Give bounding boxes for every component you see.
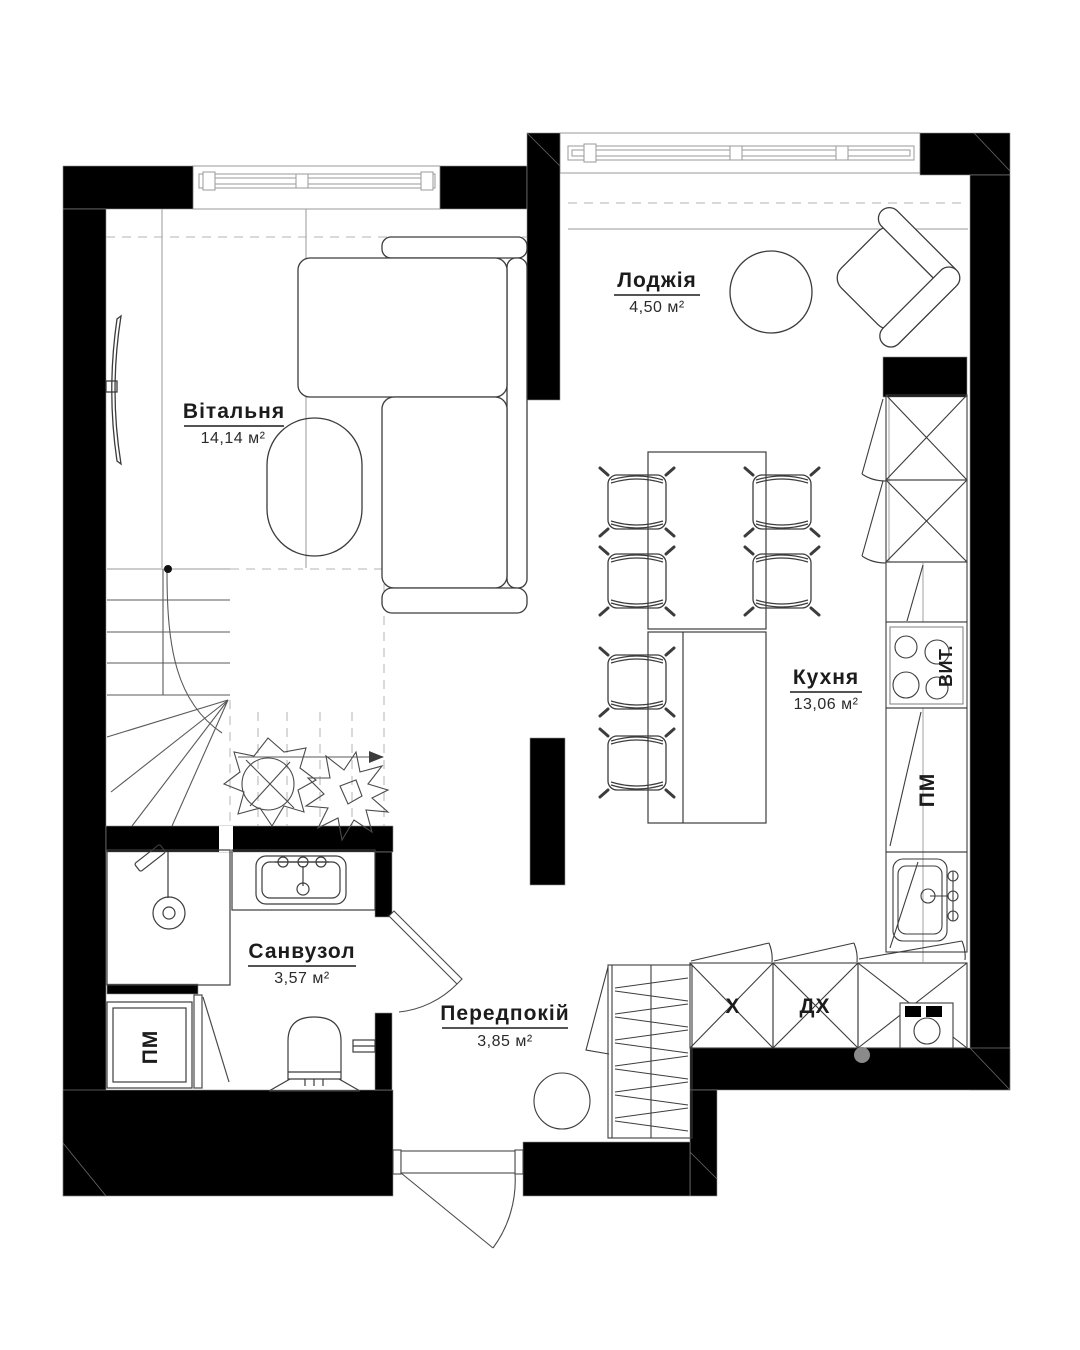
round-table [730,251,812,333]
doors [389,911,523,1248]
room-area-living: 14,14 м² [201,430,266,447]
stair-winder [107,700,228,737]
hallway-furniture [534,965,692,1138]
wall-segment [527,133,560,400]
chair [600,648,674,716]
plants [224,738,388,840]
washbasin [232,850,375,910]
dining-set [600,452,819,823]
room-label-kitchen: Кухня [793,666,859,689]
wall-pillar [530,738,565,885]
cabinet-x-label: Х [725,995,740,1018]
counter-section [886,562,967,622]
room-label-hallway: Передпокій [440,1002,569,1025]
cabinet-dx-label: ДХ [800,995,831,1018]
stair-start-dot [164,565,172,573]
wall-segment [375,852,392,917]
shower-drain [153,897,185,929]
stair-winder [111,700,228,792]
wall-segment [523,1142,690,1196]
wall-segment [883,357,967,397]
wall-segment [375,1013,392,1090]
wall-segment [690,1090,717,1196]
chair [600,729,674,797]
living-room-window [193,166,440,209]
washing-machine-label: ПМ [139,1030,162,1065]
dishwasher-label: ПМ [916,773,939,808]
room-area-hallway: 3,85 м² [477,1033,533,1050]
corner-cabinet [858,941,967,1048]
shower-glass-gap [219,826,233,852]
armchair [816,203,964,351]
sofa [298,237,527,613]
room-label-living: Вітальня [183,400,285,423]
wardrobe-open-door [586,967,609,1054]
kitchen-sink [886,852,967,952]
tall-cabinet-x [862,480,967,563]
entry-door [393,1150,523,1248]
chair [600,547,674,615]
room-area-bathroom: 3,57 м² [274,970,330,987]
tv [106,316,121,464]
chair [745,547,819,615]
loggia-window [560,133,970,173]
room-label-bathroom: Санвузол [248,940,355,963]
wall-segment [106,826,393,852]
staircase [107,565,384,826]
toilet [269,1017,375,1091]
hood-label: ВИТ. [936,645,956,687]
wall-segment [920,133,1010,175]
niche-door [194,995,229,1088]
plant-spiky-inner [340,780,362,804]
shower [107,844,230,985]
kitchen-cabinets [690,395,967,1048]
loggia-furniture [730,203,964,351]
wall-segment [690,1048,1010,1090]
plant-stem [250,762,290,806]
pouf [534,1073,590,1129]
floor-plan-svg: Вітальня 14,14 м² Лоджія 4,50 м² Кухня 1… [0,0,1080,1350]
arrowhead [369,751,384,763]
room-area-kitchen: 13,06 м² [794,696,859,713]
wall-segment [63,209,106,1196]
utility-dot [854,1047,870,1063]
chair [745,468,819,536]
coffee-table [267,418,362,556]
room-label-loggia: Лоджія [617,269,697,292]
living-room-furniture [106,237,527,613]
stair-walk-curve [167,572,222,733]
wall-segment [63,1090,393,1196]
room-area-loggia: 4,50 м² [629,299,685,316]
windows [193,133,970,209]
bathroom-door [389,911,462,1012]
wall-segment [440,166,527,209]
plant-leafy [224,738,316,826]
floor-plan-page: Вітальня 14,14 м² Лоджія 4,50 м² Кухня 1… [0,0,1080,1350]
wardrobe [586,965,692,1138]
tall-cabinet-x [862,395,967,481]
chair [600,468,674,536]
wall-segment [970,175,1010,1090]
wall-segment [63,166,193,209]
entry-door-leaf [401,1151,515,1173]
